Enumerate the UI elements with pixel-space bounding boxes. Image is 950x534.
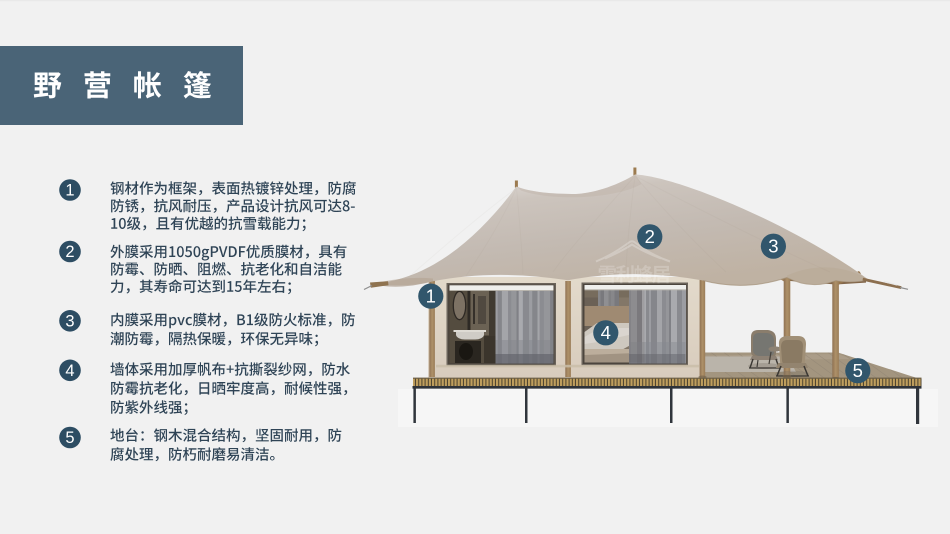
svg-text:1: 1 — [65, 182, 74, 200]
svg-text:2: 2 — [645, 226, 655, 247]
svg-text:1: 1 — [426, 285, 436, 306]
svg-text:3: 3 — [65, 312, 74, 330]
svg-text:4: 4 — [601, 322, 611, 343]
svg-text:3: 3 — [768, 236, 778, 257]
svg-text:5: 5 — [65, 429, 74, 447]
svg-text:2: 2 — [65, 243, 74, 261]
svg-text:4: 4 — [65, 362, 74, 380]
svg-text:5: 5 — [853, 360, 863, 381]
